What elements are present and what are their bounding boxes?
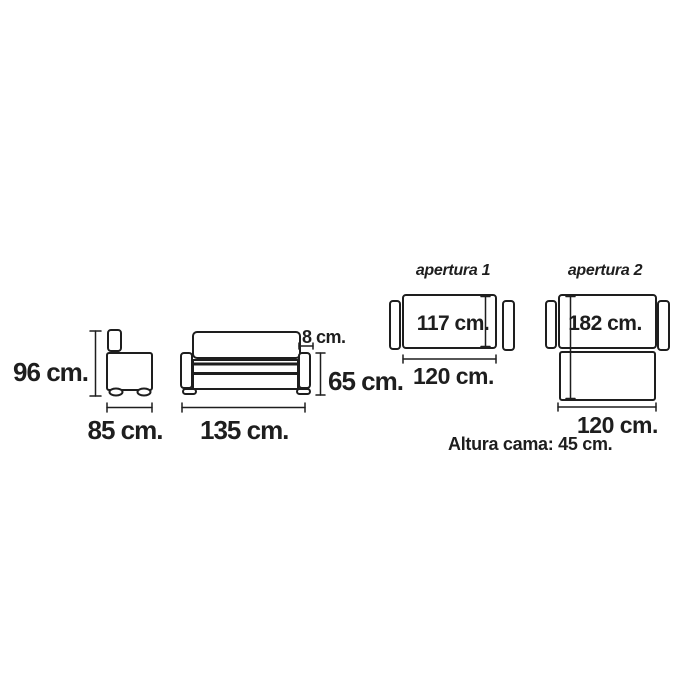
- side-back-cushion: [108, 330, 121, 351]
- front-right-arm: [299, 353, 310, 388]
- dimension-line-85: [107, 403, 152, 412]
- front-width-label: 135 cm.: [200, 415, 284, 446]
- apertura2-title: apertura 2: [545, 262, 665, 280]
- apertura1-right-arm: [503, 301, 514, 350]
- diagram-line-art: [0, 0, 700, 700]
- apertura2-left-arm: [546, 301, 556, 348]
- apertura1-title: apertura 1: [393, 262, 513, 280]
- front-foot-left: [183, 389, 196, 394]
- dimension-line-135: [182, 403, 305, 412]
- apertura2-lower-mattress: [560, 352, 655, 400]
- front-left-arm: [181, 353, 192, 388]
- apertura1-left-arm: [390, 301, 400, 349]
- front-foot-right: [297, 389, 310, 394]
- side-height-label: 96 cm.: [8, 357, 88, 388]
- sofa-dimensions-diagram: 96 cm. 85 cm. 135 cm. 8 cm. 65 cm. apert…: [0, 0, 700, 700]
- back-cushion-label: 8 cm.: [302, 327, 346, 348]
- seat-height-label: 65 cm.: [328, 366, 403, 397]
- side-foot-left: [110, 389, 123, 396]
- side-body: [107, 353, 152, 390]
- dimension-line-120-apertura2: [558, 403, 656, 411]
- dimension-line-96: [90, 331, 101, 396]
- apertura1-length-label: 117 cm.: [413, 312, 493, 336]
- bed-height-note: Altura cama: 45 cm.: [448, 434, 612, 455]
- front-backrest: [193, 332, 300, 358]
- apertura1-width-label: 120 cm.: [413, 363, 493, 390]
- dimension-line-120-apertura1: [403, 355, 496, 363]
- dimension-line-65: [316, 353, 325, 395]
- sofa-side-view-drawing: [90, 330, 152, 412]
- apertura2-right-arm: [658, 301, 669, 350]
- side-foot-right: [138, 389, 151, 396]
- apertura2-length-label: 182 cm.: [565, 312, 645, 336]
- side-width-label: 85 cm.: [85, 415, 165, 446]
